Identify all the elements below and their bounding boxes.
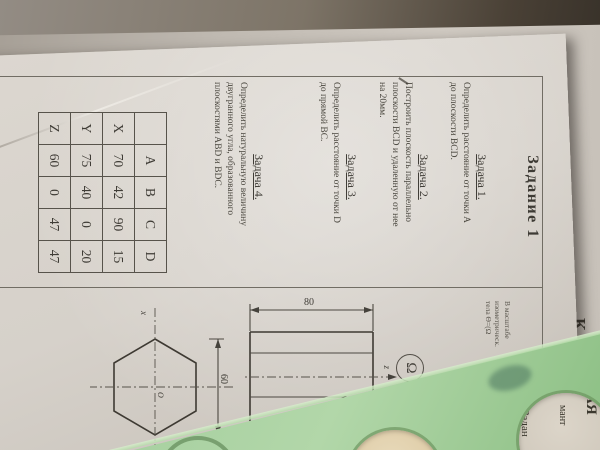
task-4-line-2: двугранного угла, образованного [223,82,236,284]
task-4-line-1: Определить натуральную величину [236,82,249,284]
coordinates-table: A B C D X 70 42 90 15 Y 75 40 0 20 Z 6 [38,112,167,273]
table-row: Y 75 40 0 20 [71,113,103,273]
table-cell: 0 [71,209,103,241]
table-cell: Z [39,113,71,145]
task-2-line-3: на 20мм. [375,82,388,284]
table-cell: 60 [39,145,71,177]
under-sheet-fragment-zadan: Задан [519,410,531,437]
under-sheet-fragment-vaya: ВАЯ [582,393,599,415]
dim-80-label: 80 [304,297,314,308]
table-cell: B [135,177,167,209]
table-cell: 47 [39,209,71,241]
task-3-line-1: Определить расстояние от точки D [329,82,342,284]
task-2-title: Задача 2. [416,102,431,252]
table-cell: D [135,241,167,273]
x-axis-label: x [139,310,149,315]
task-1-line-1: Определить расстояние от точки А [459,82,472,284]
table-cell: 47 [39,241,71,273]
task-1-text: Определить расстояние от точки А до плос… [446,82,472,284]
task-3-text: Определить расстояние от точки D до прям… [316,82,342,284]
table-cell: 75 [71,145,103,177]
table-cell: 0 [39,177,71,209]
task-2-line-2: плоскости BCD и удаленную от нее [388,82,401,284]
task-1-line-2: до плоскости BCD. [446,82,459,284]
under-sheet-fragment-mant: мант [557,405,568,425]
table-cell: 20 [71,241,103,273]
table-cell: 15 [103,241,135,273]
table-cell: A [135,145,167,177]
z-axis-label: z [382,364,392,369]
task-3-title: Задача 3. [344,102,359,252]
table-cell: 40 [71,177,103,209]
dimension-80: 80 [250,297,373,331]
table-cell: 42 [103,177,135,209]
task-1-title: Задача 1. [474,102,489,252]
sheet-header: Задание 1 [523,112,541,282]
table-cell: Y [71,113,103,145]
table-cell: X [103,113,135,145]
task-2-line-1: Построить плоскость параллельно [401,82,414,284]
photo-canvas: К Задание 1 Задача 1. Определить расстоя… [0,0,600,450]
center-label: O [156,392,165,398]
task-4-title: Задача 4. [251,102,266,252]
table-cell: 70 [103,145,135,177]
task-3-line-2: до прямой BC. [316,82,329,284]
top-view-hexagon: x O [90,308,233,450]
table-cell: 90 [103,209,135,241]
dim-60-label: 60 [218,374,229,384]
table-row: X 70 42 90 15 [103,113,135,273]
table-row: A B C D [135,113,167,273]
task-4-line-3: плоскостями ABD и BDC. [210,82,223,284]
table-row: Z 60 0 47 47 [39,113,71,273]
table-cell: C [135,209,167,241]
task-2-text: Построить плоскость параллельно плоскост… [375,82,414,284]
table-cell [135,113,167,145]
task-4-text: Определить натуральную величину двугранн… [210,82,249,284]
